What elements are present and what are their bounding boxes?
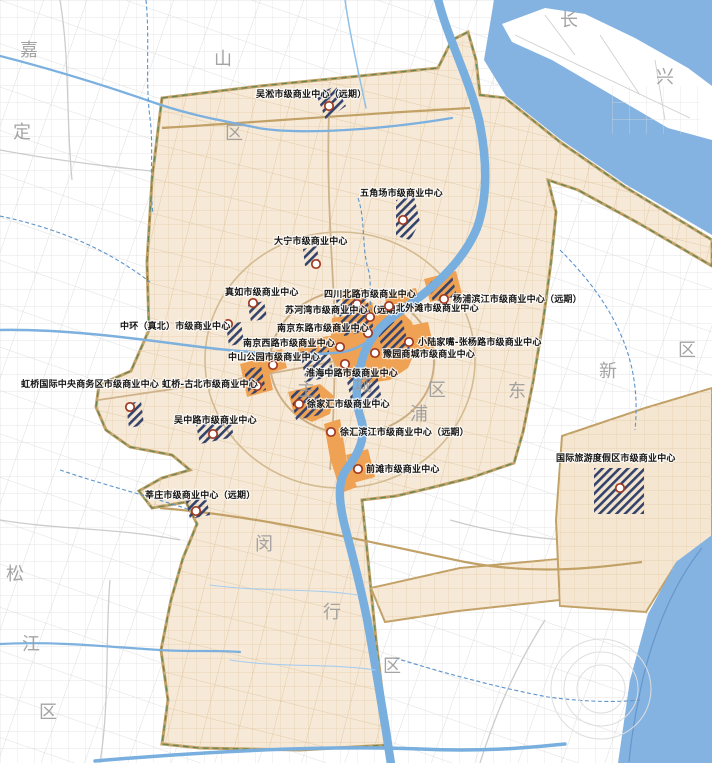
center-label: 莘庄市级商业中心（远期） (145, 489, 255, 501)
district-watermark: 嘉 (20, 40, 38, 61)
district-watermark: 主 (297, 380, 315, 401)
center-marker-dot (192, 507, 200, 515)
center-label: 虹桥国际中央商务区市级商业中心 (21, 378, 159, 390)
commercial-center: 小陆家嘴-张杨路市级商业中心 (405, 336, 542, 348)
district-watermark: 区 (428, 380, 446, 401)
district-watermark: 行 (323, 602, 341, 623)
center-marker-dot (312, 260, 320, 268)
center-marker-dot (325, 102, 333, 110)
center-marker-dot (616, 484, 624, 492)
commercial-center: 杨浦滨江市级商业中心（远期） (440, 293, 582, 305)
center-marker-dot (327, 428, 335, 436)
district-watermark: 兴 (656, 67, 674, 88)
center-label: 五角场市级商业中心 (360, 187, 443, 199)
map-svg: 嘉定山区长兴松江区闵行区主城区浦东新区 吴淞市级商业中心（远期）五角场市级商业中… (0, 0, 712, 763)
district-watermark: 江 (22, 634, 40, 655)
center-marker-dot (295, 400, 303, 408)
district-watermark: 长 (560, 10, 578, 31)
commercial-center: 虹桥-古北市级商业中心 (162, 378, 261, 390)
center-marker-dot (405, 338, 413, 346)
district-watermark: 区 (225, 123, 243, 144)
commercial-center: 豫园商城市级商业中心 (371, 348, 475, 360)
district-watermark: 区 (39, 702, 57, 723)
center-label: 国际旅游度假区市级商业中心 (556, 452, 676, 464)
center-label: 真如市级商业中心 (225, 286, 299, 298)
shanghai-commercial-centers-map: 嘉定山区长兴松江区闵行区主城区浦东新区 吴淞市级商业中心（远期）五角场市级商业中… (0, 0, 712, 763)
center-marker-dot (385, 302, 393, 310)
center-label: 虹桥-古北市级商业中心 (162, 378, 258, 390)
center-label: 前滩市级商业中心 (366, 463, 440, 475)
center-marker-dot (341, 360, 349, 368)
center-marker-dot (399, 216, 407, 224)
center-marker-dot (440, 295, 448, 303)
district-watermark: 松 (6, 564, 24, 585)
center-label: 南京西路市级商业中心 (243, 337, 335, 349)
center-label: 大宁市级商业中心 (274, 235, 348, 247)
center-label: 四川北路市级商业中心 (324, 288, 416, 300)
center-label: 徐家汇市级商业中心 (306, 398, 390, 410)
center-label: 杨浦滨江市级商业中心（远期） (453, 293, 582, 305)
district-watermark: 定 (13, 122, 31, 143)
center-marker-dot (371, 349, 379, 357)
commercial-center: 中环（真北）市级商业中心 (120, 320, 232, 332)
district-watermark: 浦 (410, 404, 428, 425)
center-marker-dot (354, 465, 362, 473)
district-watermark: 山 (214, 49, 232, 70)
district-watermark: 闵 (255, 534, 273, 555)
center-label: 中山公园市级商业中心 (228, 351, 320, 363)
commercial-center: 徐家汇市级商业中心 (295, 398, 390, 410)
commercial-center: 徐汇滨江市级商业中心（远期） (327, 426, 469, 438)
center-marker-dot (209, 430, 217, 438)
center-label: 小陆家嘴-张杨路市级商业中心 (417, 336, 542, 348)
center-marker-dot (126, 403, 134, 411)
center-label: 南京东路市级商业中心 (277, 322, 369, 334)
center-marker-dot (336, 343, 344, 351)
district-watermark: 东 (508, 381, 526, 402)
commercial-center: 前滩市级商业中心 (354, 463, 440, 475)
district-watermark: 区 (383, 656, 401, 677)
center-label: 吴中路市级商业中心 (174, 414, 257, 426)
district-watermark: 新 (599, 361, 617, 382)
center-label: 吴淞市级商业中心（远期） (256, 88, 366, 100)
center-label: 徐汇滨江市级商业中心（远期） (339, 426, 469, 438)
center-label: 淮海中路市级商业中心 (306, 367, 398, 379)
center-label: 豫园商城市级商业中心 (383, 348, 475, 360)
district-watermark: 区 (678, 340, 696, 361)
center-label: 中环（真北）市级商业中心 (120, 320, 230, 332)
center-marker-dot (249, 299, 257, 307)
